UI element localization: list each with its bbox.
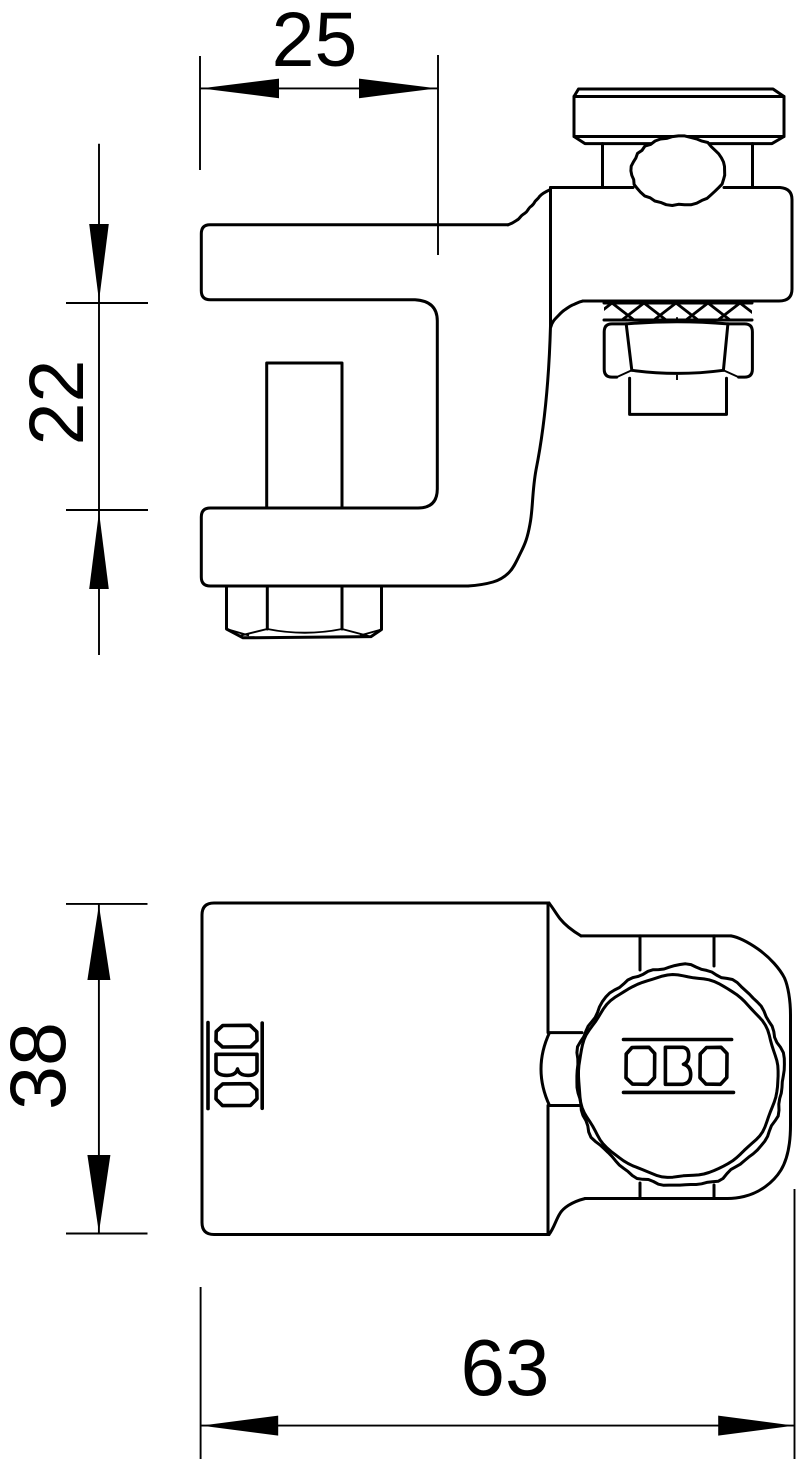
svg-text:22: 22 — [14, 360, 100, 446]
svg-text:63: 63 — [461, 1323, 550, 1412]
svg-text:38: 38 — [0, 1022, 82, 1110]
svg-text:25: 25 — [272, 0, 358, 83]
